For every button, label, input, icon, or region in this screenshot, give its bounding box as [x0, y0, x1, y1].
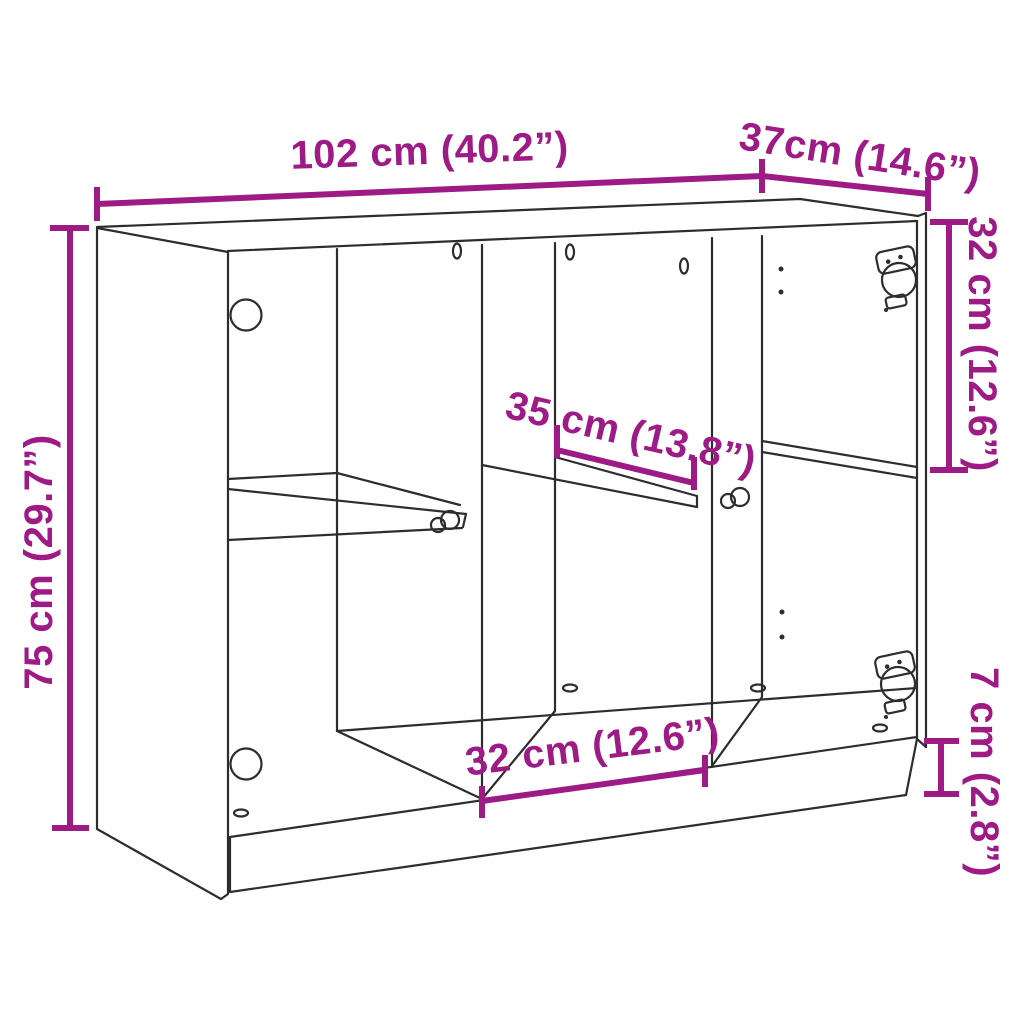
dimension-labels: 102 cm (40.2”) 37cm (14.6”) 75 cm (29.7”… [17, 114, 1006, 877]
left-door-open [97, 228, 262, 899]
hinge-bottom-icon [874, 650, 916, 714]
left-shelf [228, 473, 466, 540]
fitting-dots [779, 267, 889, 720]
dim-plinth-line [924, 741, 959, 794]
plinth-height-label: 7 cm (2.8”) [962, 667, 1006, 877]
door-knob-icon [231, 749, 262, 780]
width-label: 102 cm (40.2”) [290, 124, 570, 178]
hinge-top-icon [875, 245, 917, 309]
height-label: 75 cm (29.7”) [17, 434, 61, 690]
sideboard-drawing: 102 cm (40.2”) 37cm (14.6”) 75 cm (29.7”… [0, 0, 1024, 1024]
door-knob-icon [231, 300, 262, 331]
top-section-height-label: 32 cm (12.6”) [960, 216, 1004, 472]
dimension-diagram: 102 cm (40.2”) 37cm (14.6”) 75 cm (29.7”… [0, 0, 1024, 1024]
top-panel [97, 199, 918, 251]
dimension-lines [50, 159, 968, 828]
right-shelf [762, 441, 917, 478]
right-side-panel [917, 213, 926, 747]
